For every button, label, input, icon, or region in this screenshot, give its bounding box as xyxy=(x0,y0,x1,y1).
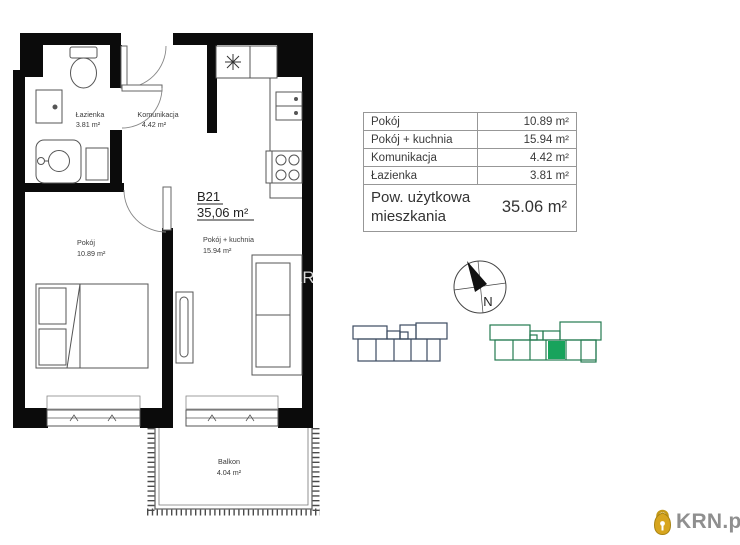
row-label: Łazienka xyxy=(364,167,478,185)
row-value: 3.81 m² xyxy=(478,167,577,185)
label-pokoj-kuchnia: Pokój + kuchnia xyxy=(203,235,254,244)
toilet-icon xyxy=(70,47,97,88)
summary-value: 35.06 m² xyxy=(489,198,569,217)
north-label: N xyxy=(483,294,492,309)
doors xyxy=(121,46,171,232)
row-value: 10.89 m² xyxy=(478,113,577,131)
washbasin-icon xyxy=(86,148,108,180)
area-balkon: 4.04 m² xyxy=(217,468,242,477)
unit-area: 35,06 m² xyxy=(197,205,249,220)
table-row: Pokój 10.89 m² xyxy=(364,113,577,131)
row-label: Pokój + kuchnia xyxy=(364,131,478,149)
area-pokoj-kuchnia: 15.94 m² xyxy=(203,246,232,255)
table-row: Komunikacja 4.42 m² xyxy=(364,149,577,167)
usable-area-summary: Pow. użytkowa mieszkania 35.06 m² xyxy=(363,185,577,232)
bathroom-door-leaf xyxy=(122,85,162,91)
label-pokoj: Pokój xyxy=(77,238,95,247)
fridge-icon xyxy=(276,92,302,120)
window-bedroom xyxy=(47,396,140,426)
floorplan-page: Łazienka 3.81 m² Komunikacja 4.42 m² Pok… xyxy=(0,0,740,545)
label-lazienka: Łazienka xyxy=(76,110,105,119)
logo-text: KRN.pl xyxy=(676,510,740,534)
krn-logo: KRN.pl xyxy=(651,507,740,537)
table-row: Pokój + kuchnia 15.94 m² xyxy=(364,131,577,149)
area-pokoj: 10.89 m² xyxy=(77,249,106,258)
label-komunikacja: Komunikacja xyxy=(137,110,178,119)
stove-icon xyxy=(266,151,302,183)
unit-id: B21 xyxy=(197,189,220,204)
shower-icon xyxy=(36,140,81,183)
row-value: 15.94 m² xyxy=(478,131,577,149)
entry-door-leaf xyxy=(121,46,127,88)
floor-plan-canvas: Łazienka 3.81 m² Komunikacja 4.42 m² Pok… xyxy=(0,0,740,545)
highlighted-unit xyxy=(548,341,565,359)
site-plan-building-1 xyxy=(353,323,447,361)
bed-icon xyxy=(36,284,148,368)
bedroom-door-arc xyxy=(124,190,166,232)
watermark: KRN.pl xyxy=(291,268,345,287)
row-label: Pokój xyxy=(364,113,478,131)
ventilation-star-icon xyxy=(225,54,241,70)
area-table: Pokój 10.89 m² Pokój + kuchnia 15.94 m² … xyxy=(363,112,577,232)
site-plan-building-2 xyxy=(490,322,601,362)
bedroom-door-leaf xyxy=(163,187,171,230)
area-komunikacja: 4.42 m² xyxy=(142,120,167,129)
washing-machine-icon xyxy=(36,90,62,123)
row-value: 4.42 m² xyxy=(478,149,577,167)
vent-cabinet-icon xyxy=(216,46,277,78)
table-row: Łazienka 3.81 m² xyxy=(364,167,577,185)
window-livingroom xyxy=(186,396,278,426)
area-lazienka: 3.81 m² xyxy=(76,120,101,129)
compass: N xyxy=(454,261,506,313)
entry-door-arc xyxy=(124,46,166,88)
padlock-icon xyxy=(651,507,674,537)
label-balkon: Balkon xyxy=(218,457,240,466)
summary-label: Pow. użytkowa mieszkania xyxy=(371,188,489,226)
row-label: Komunikacja xyxy=(364,149,478,167)
radiator-icon xyxy=(176,292,193,363)
